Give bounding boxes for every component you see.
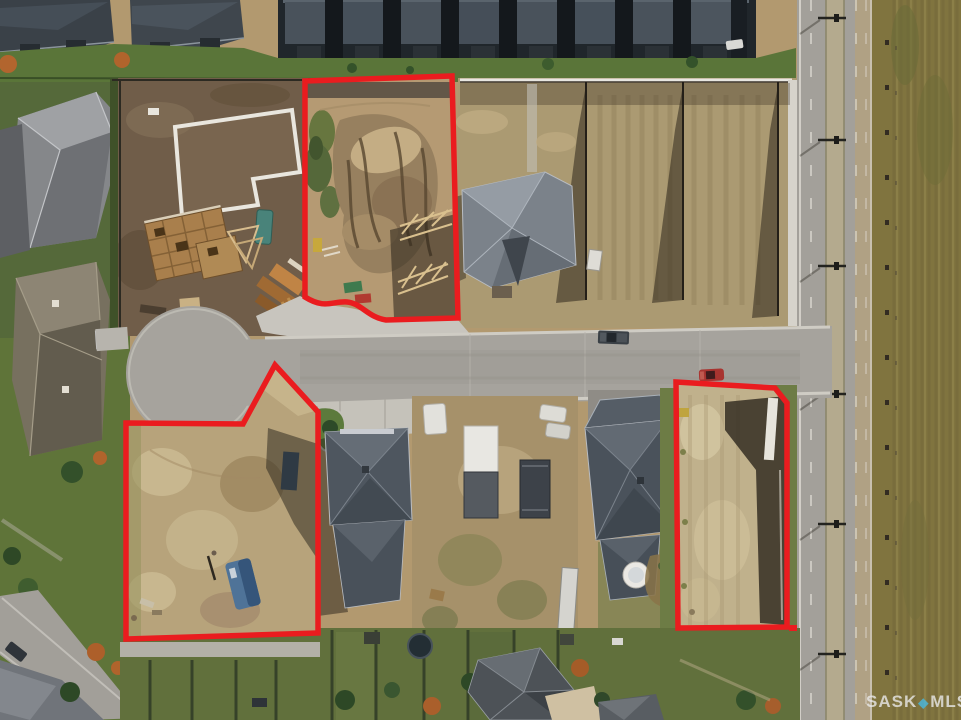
southeast-lot-interior	[672, 378, 792, 632]
watermark-brand-primary: SASK	[866, 692, 917, 711]
small-trailer	[587, 249, 603, 271]
watermark-text: SASK◆MLS®	[866, 692, 961, 711]
white-car-backyard	[612, 638, 623, 645]
white-car-2	[545, 422, 571, 439]
backyards	[120, 628, 800, 720]
pickup-truck	[598, 330, 629, 344]
yellow-machine	[679, 408, 689, 417]
north-lot-interior	[300, 70, 465, 326]
east-lots-row	[445, 78, 798, 328]
watermark: SASK◆MLS®	[866, 692, 961, 711]
box-truck	[464, 426, 498, 472]
aerial-photo: SASK◆MLS®	[0, 0, 961, 720]
red-car	[699, 368, 725, 381]
outline-corner-tick	[789, 625, 797, 631]
red-truck	[355, 293, 372, 303]
listing-photo: SASK◆MLS®	[0, 0, 961, 720]
trampoline	[408, 634, 432, 658]
watermark-brand-secondary: MLS	[930, 692, 961, 711]
diamond-icon: ◆	[917, 695, 929, 710]
condo-building-b	[12, 262, 110, 456]
white-van	[423, 403, 447, 434]
skid-steer	[313, 238, 322, 252]
white-car-1	[539, 404, 567, 422]
